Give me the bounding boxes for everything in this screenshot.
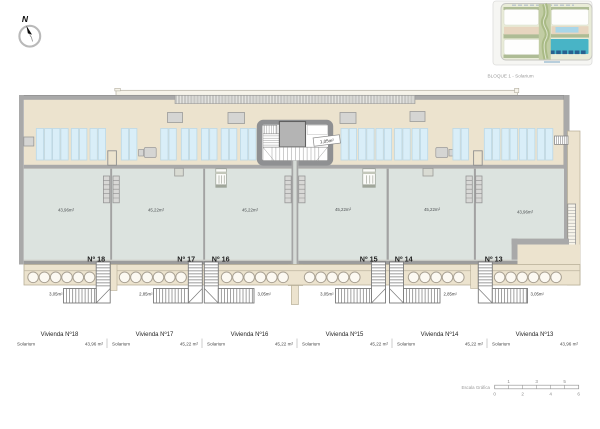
svg-text:45,22 m²: 45,22 m² [180, 342, 199, 347]
svg-text:45,22 m²: 45,22 m² [465, 342, 484, 347]
svg-text:Solarium: Solarium [17, 342, 35, 347]
svg-text:43,96 m²: 43,96 m² [85, 342, 104, 347]
svg-text:43,96 m²: 43,96 m² [560, 342, 579, 347]
svg-text:3,05m²: 3,05m² [531, 291, 545, 296]
svg-text:1: 1 [507, 379, 510, 384]
svg-text:Solarium: Solarium [492, 342, 510, 347]
svg-text:45,22m²: 45,22m² [242, 208, 259, 213]
svg-text:45,22m²: 45,22m² [424, 207, 441, 212]
svg-text:45,22m²: 45,22m² [335, 207, 352, 212]
svg-text:Vivienda Nº16: Vivienda Nº16 [231, 331, 269, 338]
svg-text:Solarium: Solarium [302, 342, 320, 347]
svg-text:6: 6 [577, 392, 580, 397]
svg-text:3,05m²: 3,05m² [320, 291, 334, 296]
svg-text:45,22 m²: 45,22 m² [275, 342, 294, 347]
svg-text:43,96m²: 43,96m² [517, 210, 534, 215]
svg-text:2,85m²: 2,85m² [139, 291, 153, 296]
svg-text:43,96m²: 43,96m² [58, 208, 75, 213]
svg-text:Solarium: Solarium [112, 342, 130, 347]
svg-text:3: 3 [535, 379, 538, 384]
svg-text:4: 4 [549, 392, 552, 397]
svg-text:Vivienda Nº15: Vivienda Nº15 [326, 331, 364, 338]
svg-text:Vivienda Nº18: Vivienda Nº18 [41, 331, 79, 338]
svg-text:3,05m²: 3,05m² [258, 291, 272, 296]
svg-text:Solarium: Solarium [207, 342, 225, 347]
svg-text:5: 5 [563, 379, 566, 384]
svg-text:Vivienda Nº17: Vivienda Nº17 [136, 331, 174, 338]
svg-text:Solarium: Solarium [397, 342, 415, 347]
svg-text:45,22 m²: 45,22 m² [370, 342, 389, 347]
svg-text:Vivienda Nº13: Vivienda Nº13 [516, 331, 554, 338]
svg-text:2,85m²: 2,85m² [444, 291, 458, 296]
svg-text:BLOQUE 1 - Solarium: BLOQUE 1 - Solarium [488, 74, 534, 79]
svg-text:Escala Gráfica: Escala Gráfica [461, 385, 490, 390]
svg-text:2: 2 [521, 392, 524, 397]
svg-text:N: N [22, 14, 29, 24]
svg-text:Vivienda Nº14: Vivienda Nº14 [421, 331, 459, 338]
svg-text:45,22m²: 45,22m² [148, 208, 165, 213]
svg-text:3,05m²: 3,05m² [49, 291, 63, 296]
svg-text:0: 0 [493, 392, 496, 397]
